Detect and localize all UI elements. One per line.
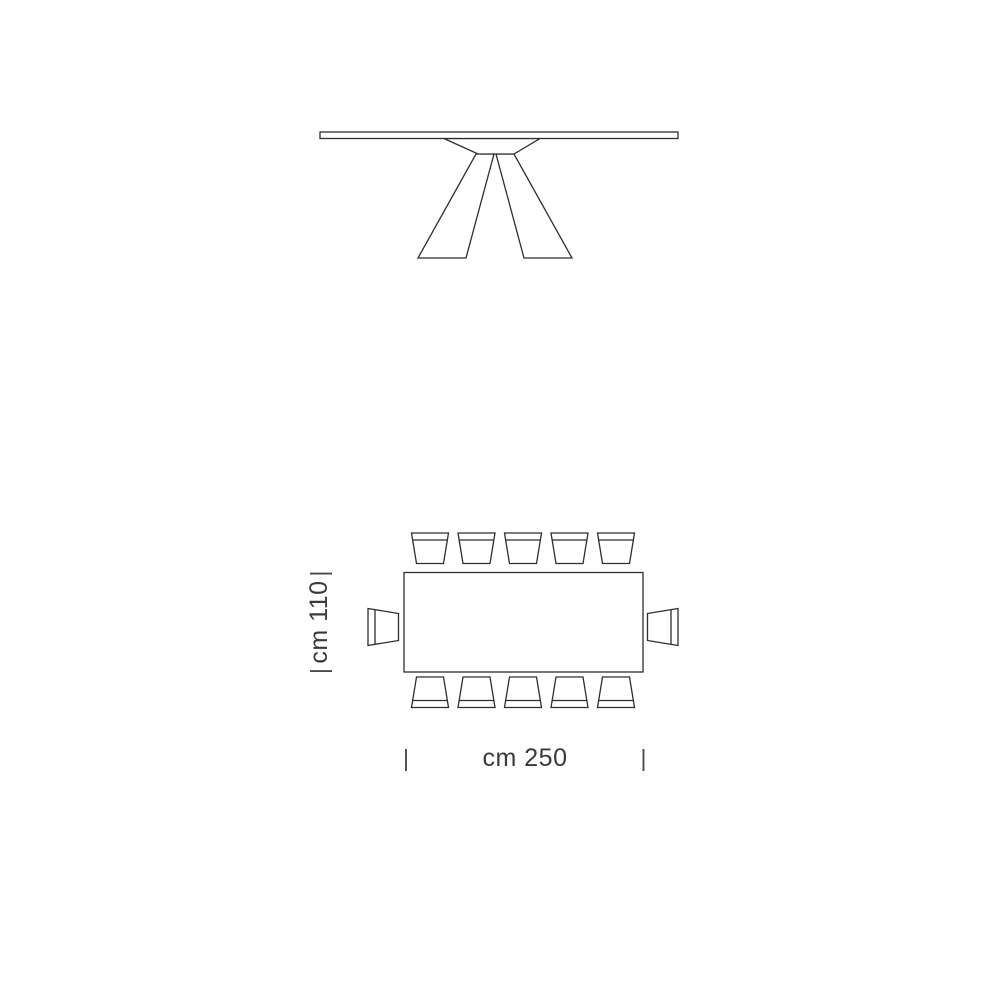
chair-top-5	[598, 533, 635, 564]
length-dimension-label: cm 250	[483, 746, 568, 771]
dimension-tick: |	[403, 747, 409, 770]
technical-drawing-canvas	[0, 0, 1000, 1000]
depth-dimension: | cm 110 |	[303, 570, 335, 674]
tabletop-front	[320, 132, 678, 139]
table-leg-left	[418, 154, 494, 258]
chair-bottom-4	[551, 677, 588, 708]
plan-view	[368, 533, 678, 708]
dimension-tick: |	[641, 747, 647, 770]
chair-bottom-1	[412, 677, 449, 708]
chair-top-4	[551, 533, 588, 564]
chair-bottom-3	[505, 677, 542, 708]
length-dimension: | cm 250 |	[403, 743, 647, 773]
depth-dimension-label: cm 110	[307, 580, 332, 663]
dimension-tick: |	[308, 570, 331, 576]
chair-top-1	[412, 533, 449, 564]
tabletop-plan	[404, 573, 643, 673]
dimension-tick: |	[308, 668, 331, 674]
chair-top-3	[505, 533, 542, 564]
chair-bottom-2	[458, 677, 495, 708]
chair-bottom-5	[598, 677, 635, 708]
chair-left-end	[368, 609, 399, 646]
table-leg-right	[496, 154, 572, 258]
product-spec-sheet: | cm 110 | | cm 250 |	[0, 0, 1000, 1000]
pedestal-mount	[444, 139, 540, 155]
chair-right-end	[648, 609, 679, 646]
chair-top-2	[458, 533, 495, 564]
front-elevation-view	[320, 132, 678, 258]
